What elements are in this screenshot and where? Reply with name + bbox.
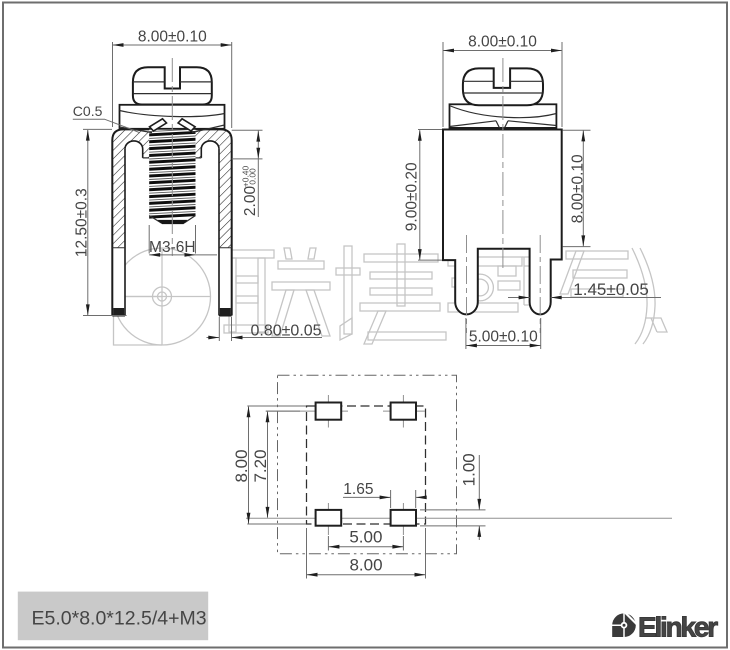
svg-text:9.00±0.20: 9.00±0.20	[404, 162, 421, 231]
svg-text:M3-6H: M3-6H	[149, 239, 196, 256]
svg-text:8.00±0.10: 8.00±0.10	[138, 29, 207, 46]
svg-text:2.00: 2.00	[242, 186, 259, 217]
svg-text:E5.0*8.0*12.5/4+M3: E5.0*8.0*12.5/4+M3	[32, 608, 207, 630]
svg-text:1.45±0.05: 1.45±0.05	[573, 280, 649, 299]
svg-text:5.00±0.10: 5.00±0.10	[469, 329, 538, 346]
svg-text:0.00: 0.00	[248, 168, 258, 185]
svg-text:12.50±0.3: 12.50±0.3	[74, 188, 91, 257]
svg-text:1.00: 1.00	[460, 453, 479, 486]
svg-text:8.00: 8.00	[349, 556, 382, 575]
svg-text:0.80±0.05: 0.80±0.05	[251, 323, 322, 340]
svg-text:8.00±0.10: 8.00±0.10	[468, 34, 537, 51]
svg-text:1.65: 1.65	[343, 481, 373, 498]
svg-text:5.00: 5.00	[349, 528, 382, 547]
svg-text:7.20: 7.20	[251, 449, 270, 482]
svg-text:C0.5: C0.5	[73, 103, 103, 119]
svg-text:Elinker: Elinker	[638, 612, 718, 643]
svg-text:8.00±0.10: 8.00±0.10	[570, 154, 587, 223]
svg-text:8.00: 8.00	[232, 449, 251, 482]
